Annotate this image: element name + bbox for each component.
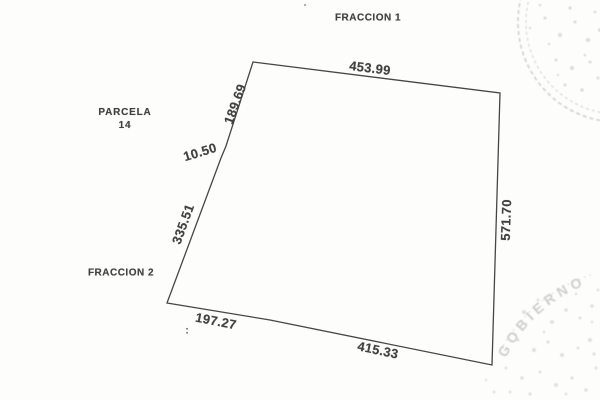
fraccion-1-label: FRACCION 1 [335,13,401,24]
seal-arc-text: GOBIERNO [494,272,588,359]
svg-text:GOBIERNO: GOBIERNO [494,272,588,359]
seal-speckles [529,4,600,95]
survey-sketch-page: GOBIERNO FRACCION 1 PARCELA 14 FRAC [0,0,600,400]
dimension-right: 571.70 [498,199,514,241]
stray-scan-mark: : [185,326,188,337]
scan-speck [304,4,306,6]
parcela-label-line1: PARCELA [96,106,154,119]
parcela-label-line2: 14 [96,119,154,132]
bottom-right-seal-stamp: GOBIERNO [485,272,600,395]
parcela-14-label: PARCELA 14 [96,106,154,132]
fraccion-2-label: FRACCION 2 [88,268,154,279]
top-right-seal-stamp [518,0,600,122]
